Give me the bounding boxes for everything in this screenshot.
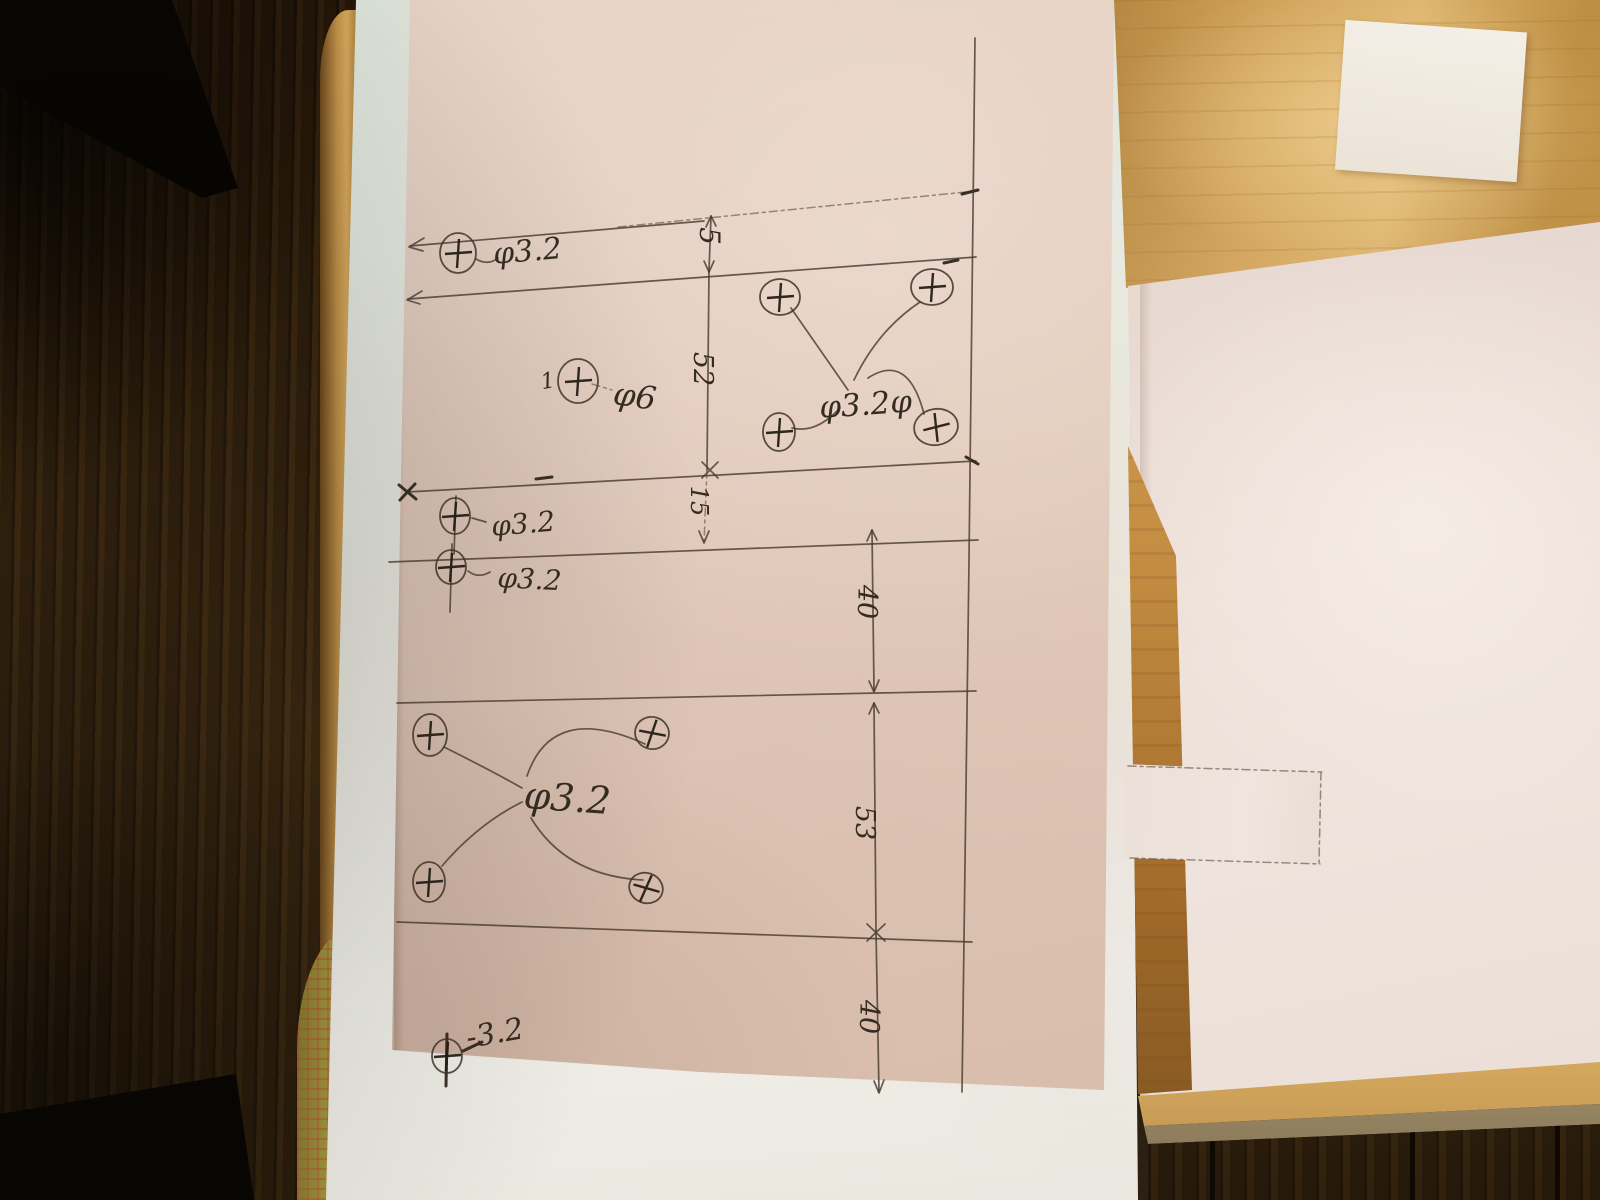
bottom-right-area bbox=[1100, 1050, 1600, 1200]
white-card bbox=[1335, 20, 1527, 182]
photo-scene: φ3.2552φ6φ3.2φ15φ3.2φ3.240φ3.25340-3.21 bbox=[0, 0, 1600, 1200]
paper-tab bbox=[1124, 760, 1326, 866]
